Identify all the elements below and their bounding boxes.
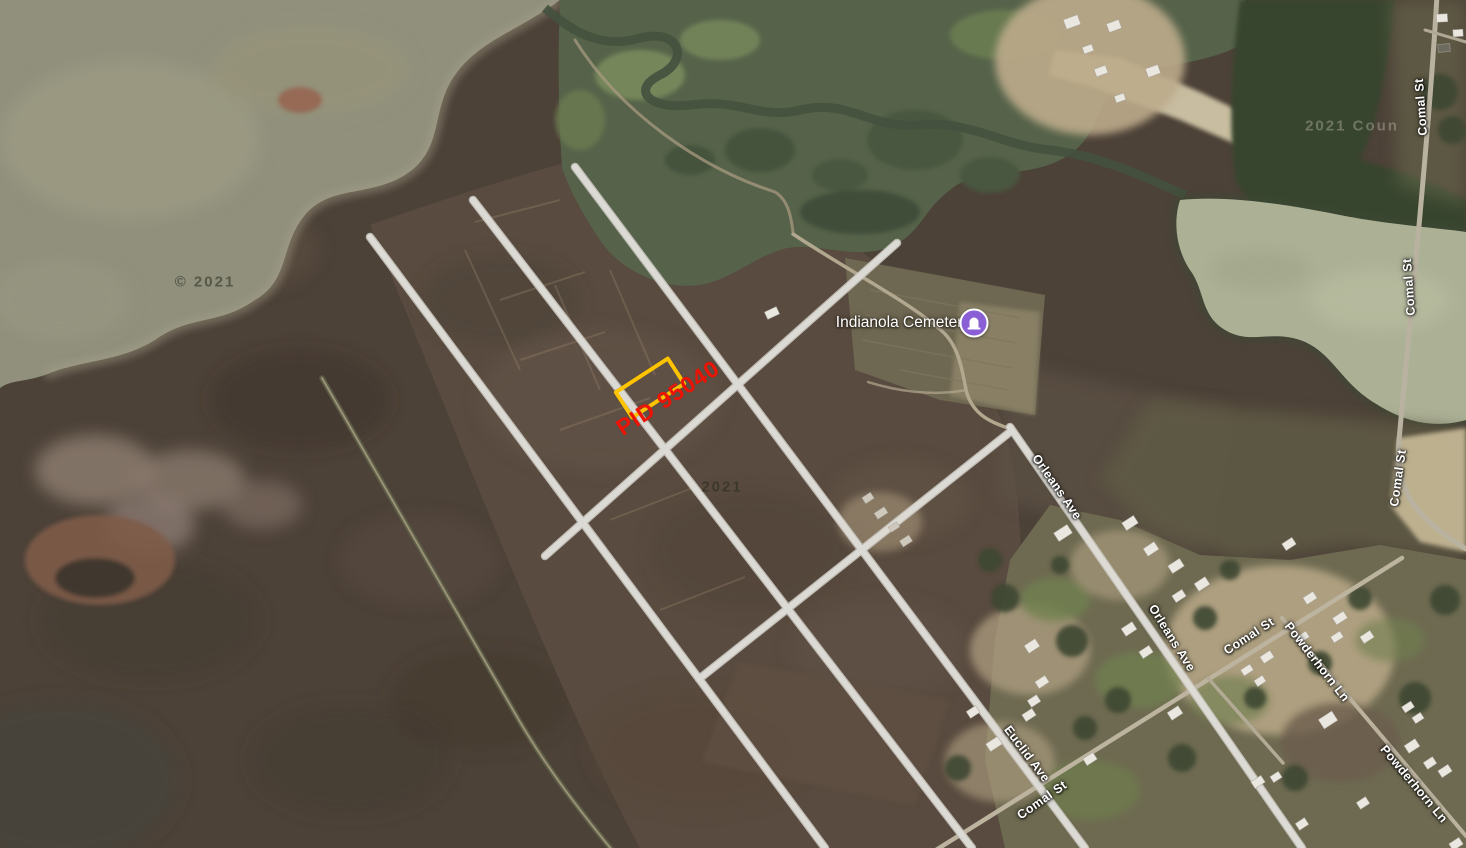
- satellite-imagery: [0, 0, 1466, 848]
- tombstone-glyph: [970, 318, 979, 329]
- cemetery-icon[interactable]: [960, 309, 989, 338]
- poi-label[interactable]: Indianola Cemetery: [836, 314, 970, 332]
- map-canvas[interactable]: PID 95040 Indianola Cemetery Comal StCom…: [0, 0, 1466, 848]
